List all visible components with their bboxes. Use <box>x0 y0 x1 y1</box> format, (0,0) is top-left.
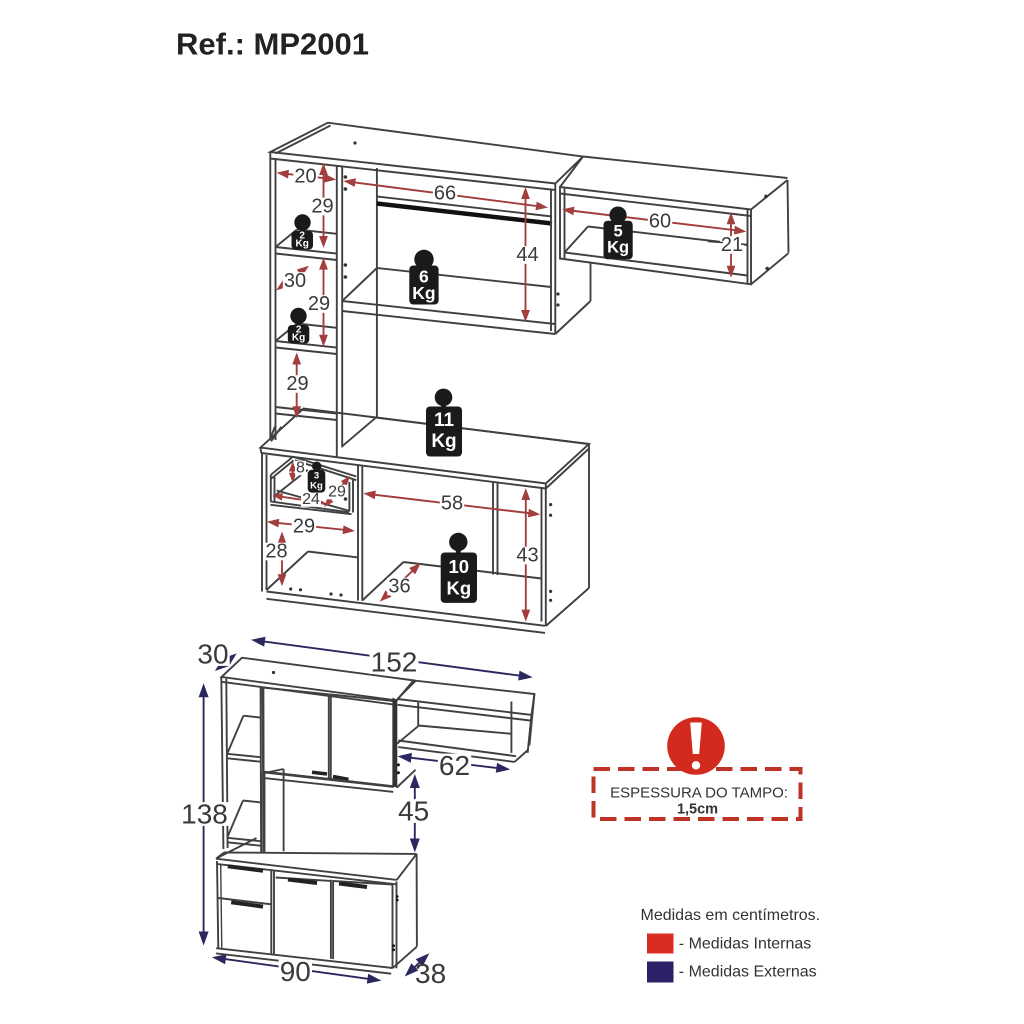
svg-text:66: 66 <box>434 183 456 205</box>
svg-text:Kg: Kg <box>412 283 435 303</box>
svg-text:90: 90 <box>280 956 311 987</box>
svg-text:- Medidas Externas: - Medidas Externas <box>679 963 817 980</box>
svg-text:58: 58 <box>441 493 463 515</box>
svg-text:20: 20 <box>294 166 316 188</box>
svg-text:43: 43 <box>516 545 538 567</box>
svg-text:10: 10 <box>449 556 470 577</box>
svg-text:45: 45 <box>398 796 429 827</box>
svg-text:29: 29 <box>286 373 308 395</box>
svg-text:1,5cm: 1,5cm <box>677 802 718 818</box>
svg-text:Kg: Kg <box>310 480 323 491</box>
svg-text:29: 29 <box>293 515 315 537</box>
svg-text:44: 44 <box>516 244 538 266</box>
svg-text:ESPESSURA DO TAMPO:: ESPESSURA DO TAMPO: <box>610 785 788 802</box>
svg-text:Kg: Kg <box>431 431 456 452</box>
svg-text:Kg: Kg <box>446 577 471 598</box>
svg-text:21: 21 <box>721 234 743 256</box>
svg-text:36: 36 <box>388 576 410 598</box>
svg-text:28: 28 <box>265 541 287 563</box>
svg-text:30: 30 <box>197 639 228 670</box>
svg-text:Ref.: MP2001: Ref.: MP2001 <box>176 27 369 62</box>
svg-text:Kg: Kg <box>292 332 305 343</box>
svg-text:60: 60 <box>649 211 671 233</box>
svg-text:152: 152 <box>371 647 418 678</box>
svg-text:29: 29 <box>311 196 333 218</box>
svg-text:29: 29 <box>328 484 346 501</box>
svg-text:38: 38 <box>415 958 446 989</box>
svg-text:- Medidas Internas: - Medidas Internas <box>679 936 812 953</box>
svg-text:Kg: Kg <box>296 238 309 249</box>
svg-text:8: 8 <box>296 460 305 477</box>
svg-text:62: 62 <box>439 750 470 781</box>
svg-text:30: 30 <box>284 270 306 292</box>
svg-text:29: 29 <box>308 293 330 315</box>
svg-text:Kg: Kg <box>607 239 629 257</box>
svg-text:11: 11 <box>434 410 455 431</box>
svg-text:Medidas em centímetros.: Medidas em centímetros. <box>641 907 821 924</box>
svg-text:24: 24 <box>302 491 320 508</box>
svg-text:138: 138 <box>181 799 228 830</box>
